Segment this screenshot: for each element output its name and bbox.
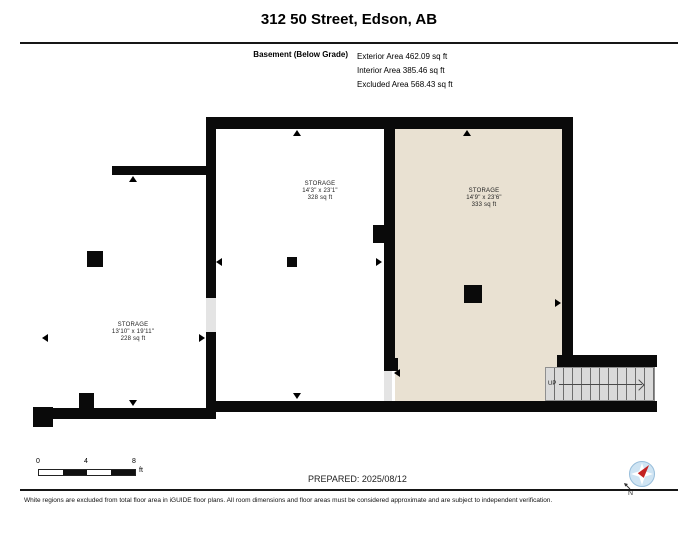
measure-arrow-left-icon xyxy=(216,258,222,266)
stairs: UP xyxy=(545,367,655,401)
room-fill-storage-right xyxy=(395,128,562,402)
prepared-date: PREPARED: 2025/08/12 xyxy=(308,474,407,484)
wall-right-divider xyxy=(384,117,395,358)
stairs-direction-line xyxy=(559,384,642,385)
excluded-area: Excluded Area 568.43 sq ft xyxy=(357,78,453,92)
wall-bottom-left xyxy=(40,408,216,419)
page-title: 312 50 Street, Edson, AB xyxy=(0,11,698,28)
footer-divider xyxy=(20,489,678,491)
scale-bar xyxy=(38,469,136,476)
scale-tick-8: 8 xyxy=(129,458,139,465)
column-post xyxy=(79,393,94,409)
room-dimensions: 14'9" x 23'6" xyxy=(424,195,544,202)
room-dimensions: 13'10" x 19'11" xyxy=(73,329,193,336)
room-name: STORAGE xyxy=(260,181,380,188)
scale-tick-0: 0 xyxy=(33,458,43,465)
wall-above-stairs xyxy=(557,355,657,367)
wall-stub-left xyxy=(112,166,207,175)
column-post xyxy=(464,285,482,303)
north-label: N xyxy=(628,490,633,497)
wall-bottom-left-endcap xyxy=(33,407,53,427)
wall-bottom-main xyxy=(207,401,657,412)
room-name: STORAGE xyxy=(424,188,544,195)
stairs-direction-arrow-icon xyxy=(633,379,644,390)
column-post xyxy=(87,251,103,267)
disclaimer-text: White regions are excluded from total fl… xyxy=(24,497,684,504)
door-opening-left-divider xyxy=(206,298,216,332)
room-label-storage-left: STORAGE 13'10" x 19'11" 228 sq ft xyxy=(73,322,193,343)
scale-segment xyxy=(63,470,87,475)
interior-area: Interior Area 385.46 sq ft xyxy=(357,64,453,78)
exterior-area: Exterior Area 462.09 sq ft xyxy=(357,50,453,64)
room-dimensions: 14'3" x 23'1" xyxy=(260,188,380,195)
floor-label: Basement (Below Grade) xyxy=(140,50,348,59)
room-name: STORAGE xyxy=(73,322,193,329)
wall-left-divider-upper xyxy=(206,117,216,298)
scale-segment xyxy=(39,470,63,475)
floor-plan-page: 312 50 Street, Edson, AB Basement (Below… xyxy=(0,0,698,540)
scale-unit-label: ft xyxy=(139,467,143,474)
measure-arrow-left-icon xyxy=(42,334,48,342)
area-summary: Exterior Area 462.09 sq ft Interior Area… xyxy=(357,50,453,92)
scale-segment xyxy=(111,470,135,475)
measure-arrow-up-icon xyxy=(293,130,301,136)
stairs-up-label: UP xyxy=(548,381,556,387)
column-post xyxy=(287,257,297,267)
room-area: 333 sq ft xyxy=(424,202,544,209)
measure-arrow-down-icon xyxy=(293,393,301,399)
header-divider xyxy=(20,42,678,44)
measure-arrow-up-icon xyxy=(463,130,471,136)
measure-arrow-left-icon xyxy=(394,369,400,377)
door-opening-right-divider xyxy=(384,371,392,401)
room-area: 228 sq ft xyxy=(73,336,193,343)
measure-arrow-right-icon xyxy=(199,334,205,342)
scale-segment xyxy=(87,470,111,475)
measure-arrow-up-icon xyxy=(129,176,137,182)
measure-arrow-right-icon xyxy=(555,299,561,307)
compass-icon: N xyxy=(621,459,661,497)
measure-arrow-right-icon xyxy=(376,258,382,266)
room-area: 328 sq ft xyxy=(260,195,380,202)
wall-pilaster xyxy=(373,225,384,243)
room-label-storage-right: STORAGE 14'9" x 23'6" 333 sq ft xyxy=(424,188,544,209)
room-label-storage-middle: STORAGE 14'3" x 23'1" 328 sq ft xyxy=(260,181,380,202)
measure-arrow-down-icon xyxy=(129,400,137,406)
scale-tick-4: 4 xyxy=(81,458,91,465)
wall-right-exterior xyxy=(562,117,573,363)
